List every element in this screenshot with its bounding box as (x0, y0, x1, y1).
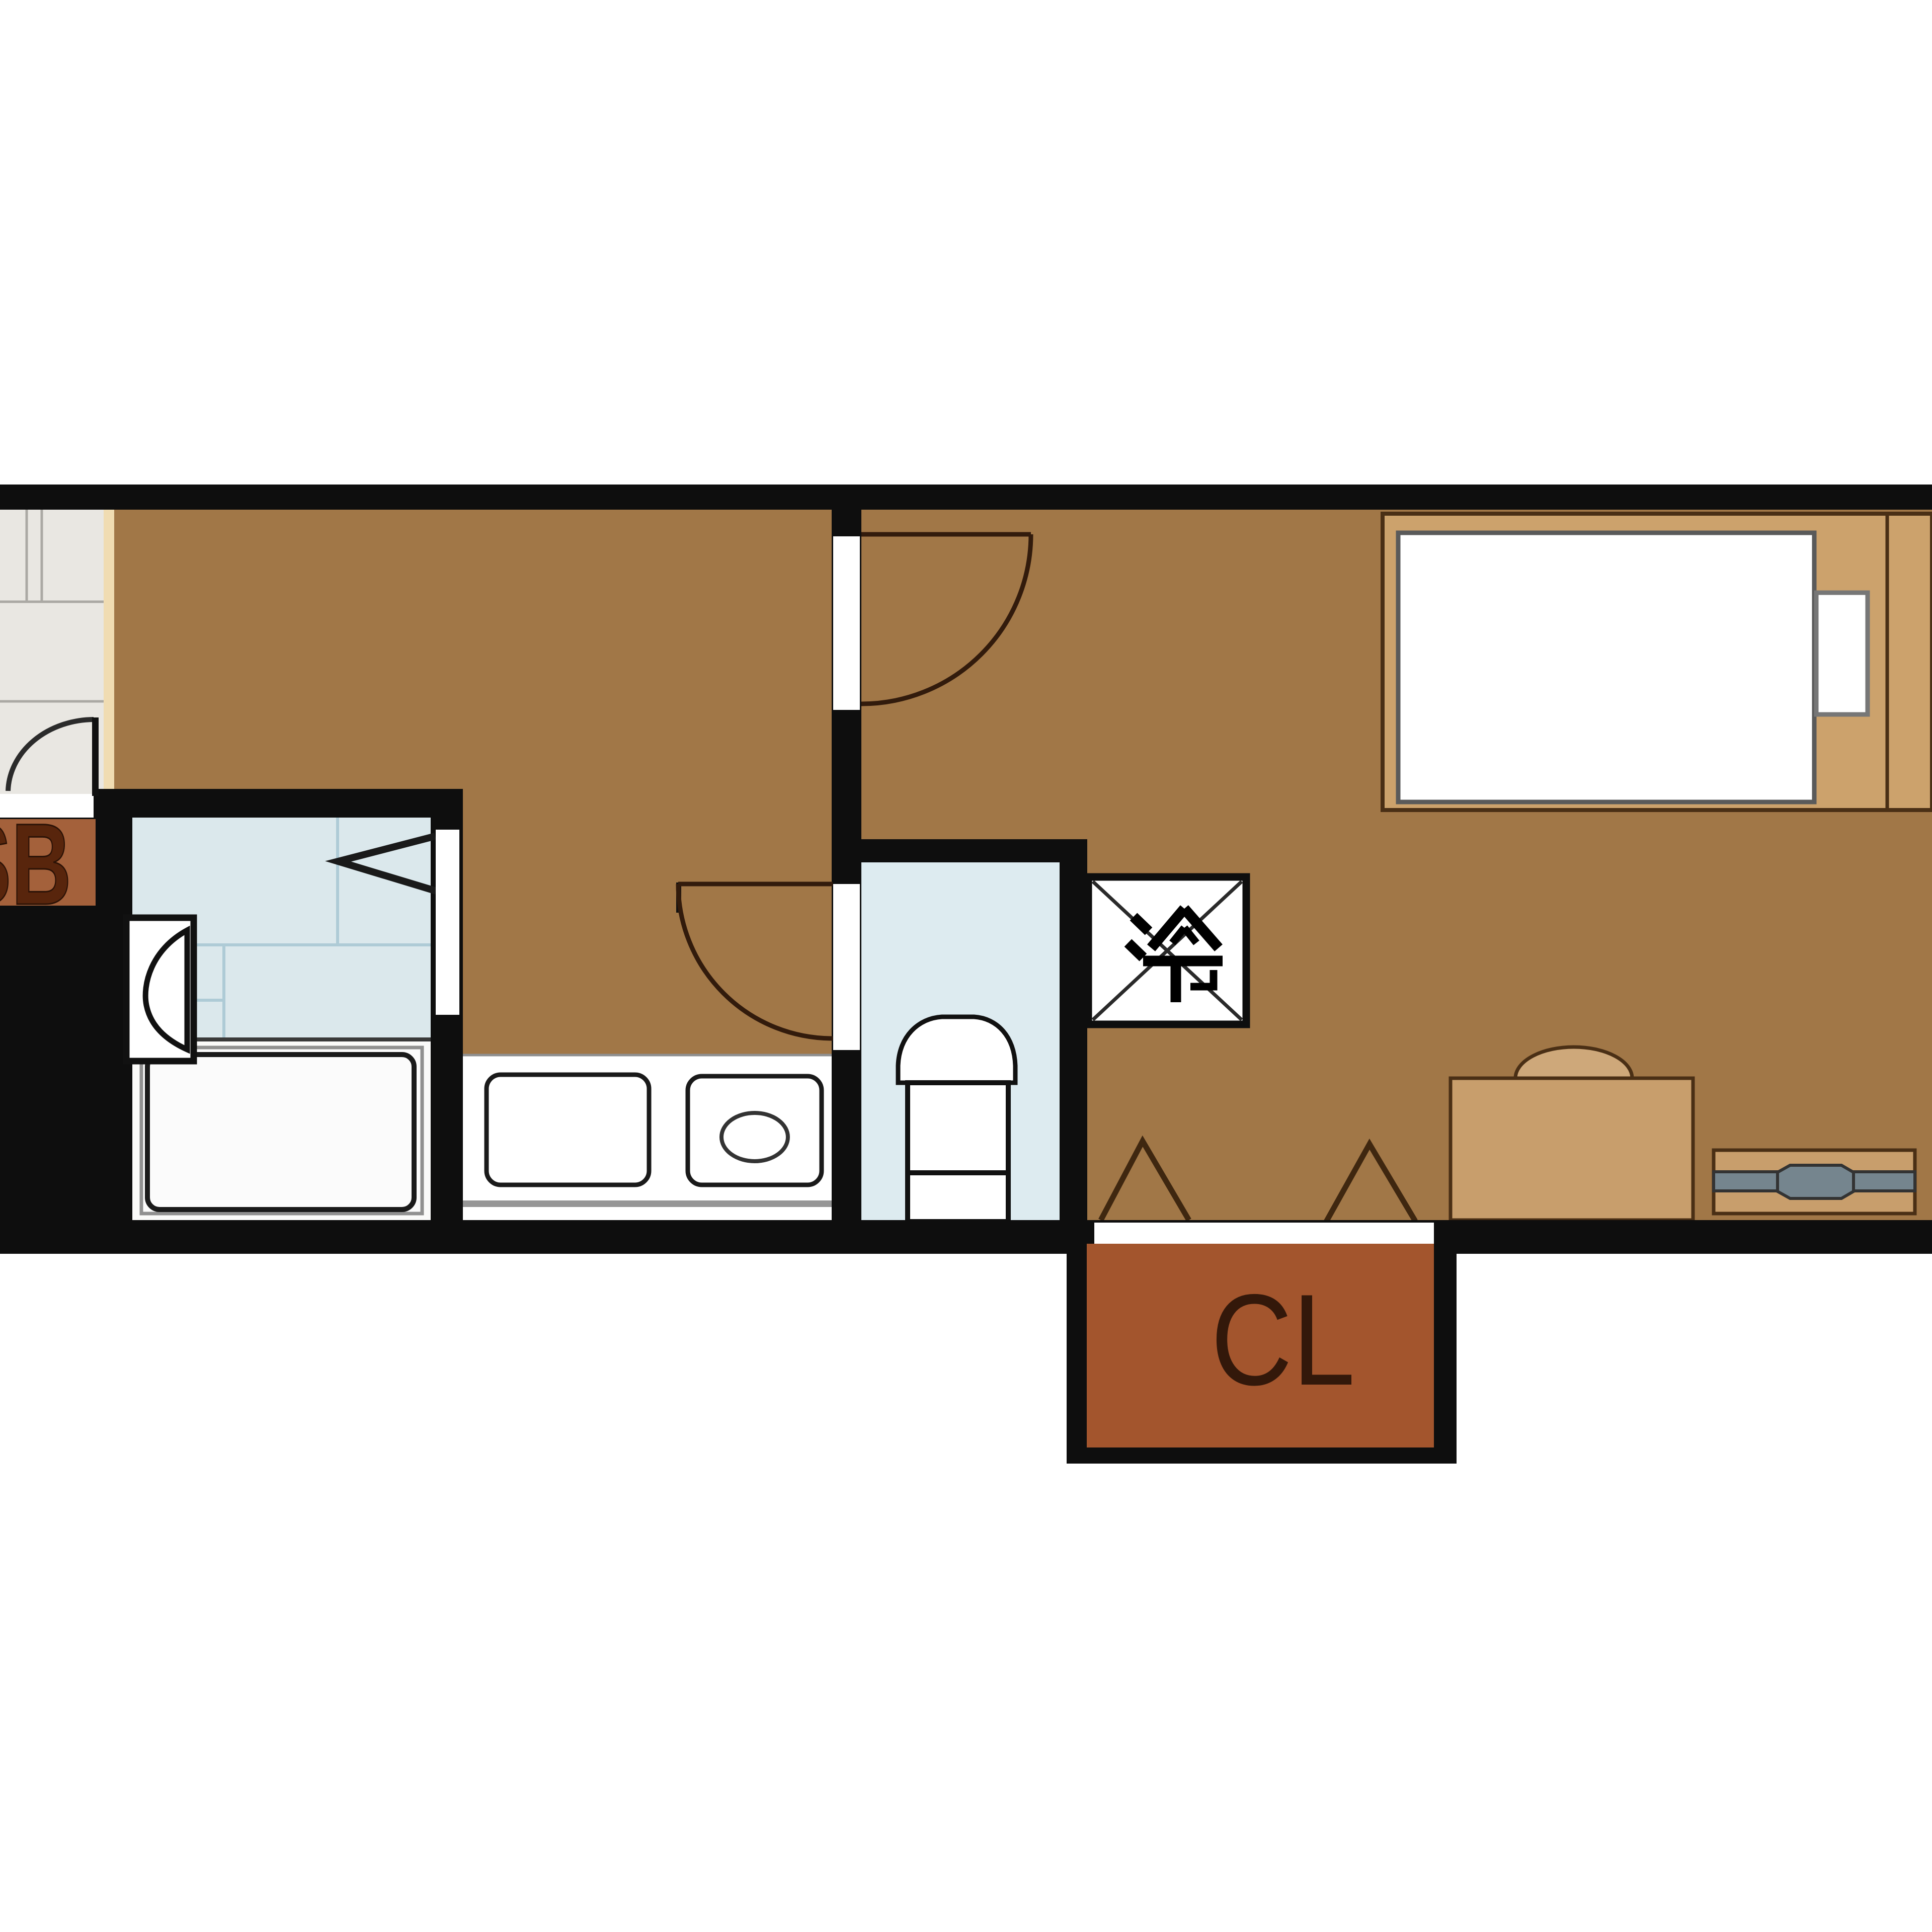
svg-text:SB: SB (0, 800, 71, 929)
svg-text:CL: CL (1211, 1267, 1355, 1412)
